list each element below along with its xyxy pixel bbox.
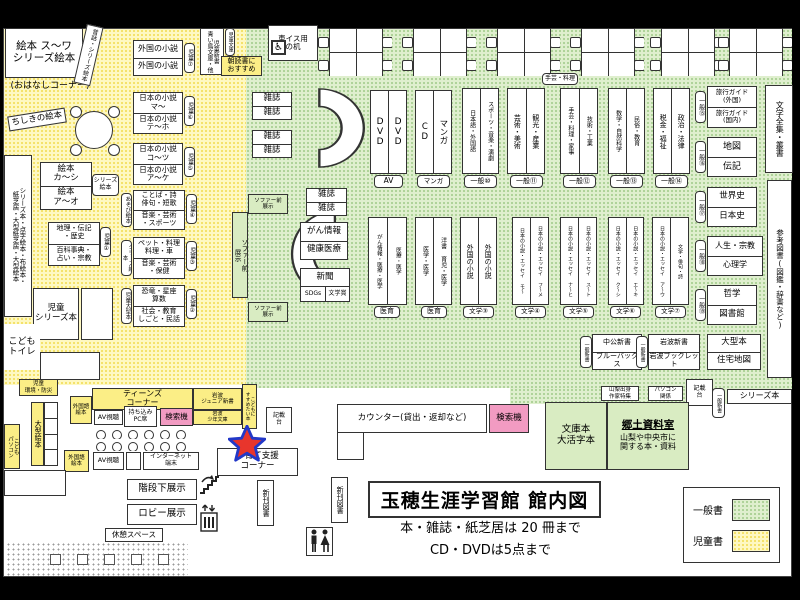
jp-novels-haiku-shelf-col: 日本の小説・エッセイ ア～ウ <box>653 218 670 304</box>
chair-icon <box>650 37 661 48</box>
chair-icon <box>486 37 497 48</box>
chair-icon <box>570 60 581 71</box>
iwanami-shinsho-shelf-row: 岩波ブックレット <box>649 352 699 370</box>
rest-space-label: 休憩スペース <box>105 528 163 542</box>
sdgs-label: SDGs <box>300 286 326 302</box>
foreign-novels-shelf: 外国の小説外国の小説 <box>460 217 497 305</box>
shelf-tag-ippan-14: 一般⑭ <box>655 175 688 188</box>
kotoba-poetry-shelf-row: ことば・詩 俳句・短歌 <box>134 191 184 210</box>
large-picturebook-cells <box>44 402 58 466</box>
library-floor-map: 絵本 ス～ワ シリーズ絵本(おはなしコーナー)昔話・シリーズ絵本ちしきの絵本外国… <box>0 0 800 600</box>
chair-icon <box>382 60 392 71</box>
shelf-tag-iiku: 医育 <box>374 306 400 318</box>
cancer-info-shelf-row: がん情報 <box>301 223 347 241</box>
chuko-shinsho-shelf-row: ブルーバックス <box>593 352 641 370</box>
jp-novels-a-tsu-shelf-row: 日本の小説 ア～ケ <box>134 164 182 185</box>
art-tourism-shelf: 芸術・美術観光・産業 <box>507 88 545 174</box>
series-ehon-tag: シリーズ絵本 <box>121 240 132 276</box>
chair-icon <box>550 37 560 48</box>
math-science-shelf-col: 数学・自然科学 <box>609 89 626 173</box>
life-religion-shelf: 人生・宗教心理学 <box>707 236 763 276</box>
shelf-tag-bungaku-7: 文学⑦ <box>655 306 686 318</box>
medical-yosho-shelf: 医学・医学洋書 育児・医学 <box>415 217 452 305</box>
picturebook-ka-shi-shelf: 絵本 カ～シ絵本 ア～オ <box>40 162 92 210</box>
bench <box>4 470 66 496</box>
counter-leg <box>337 432 364 460</box>
internet-terminal: インターネット 端末 <box>143 452 199 470</box>
chair-icon <box>486 60 497 71</box>
medical-yosho-shelf-col: 洋書 育児・医学 <box>433 218 451 304</box>
world-history-shelf-row: 日本史 <box>708 207 756 227</box>
tax-politics-shelf-col: 税金・福祉 <box>654 89 671 173</box>
shelf-tag-bungaku-3: 文学③ <box>463 306 494 318</box>
chair-icon <box>112 442 122 451</box>
byod-pc-seat: 持ち込み PC席 <box>124 406 157 427</box>
language-sports-shelf: 日本語・外国語スポーツ・音楽・演劇 <box>462 88 499 174</box>
chair-icon <box>112 430 122 439</box>
sofa-crescent <box>313 87 367 169</box>
cd-manga-shelf-col: マンガ <box>433 91 451 173</box>
iwanami-shinsho-shelf: 岩波新書岩波ブックレット <box>648 334 700 370</box>
large-books-shelf: 大型本住宅地図 <box>707 334 761 370</box>
chair-icon <box>634 60 644 71</box>
dvd-shelf: DVDDVD <box>370 90 407 174</box>
av-seat: AV視聴 <box>93 452 124 470</box>
chair-icon <box>550 60 560 71</box>
jp-novels-essay-shelf: 日本の小説・エッセイ モ～日本の小説・エッセイ フ～メ <box>512 217 549 305</box>
jp-novels-essay-shelf-col: 日本の小説・エッセイ エ～キ <box>626 218 644 304</box>
shelf-tag-ippan-16: 一般⑯ <box>695 141 706 173</box>
dvd-shelf-col: DVD <box>371 91 388 173</box>
life-religion-shelf-row: 心理学 <box>708 256 762 276</box>
asadoku-osusume-box: 朝読書に おすすめ <box>221 56 262 76</box>
table-icon <box>413 28 467 76</box>
chair-icon <box>96 442 106 451</box>
local-history-room-title: 郷土資料室 <box>622 420 675 432</box>
large-picturebook-label: 大型絵本 <box>31 402 44 466</box>
cd-manga-shelf-col: CD <box>416 91 433 173</box>
counter: カウンター(貸出・返却など) <box>337 404 487 433</box>
chair-icon <box>176 430 186 439</box>
chair-icon <box>634 37 644 48</box>
jp-novels-essay-shelf: 日本の小説・エッセイ ク～シ日本の小説・エッセイ エ～キ <box>608 217 644 305</box>
jp-novels-ma-ho-shelf-row: 日本の小説 テ～ホ <box>134 113 182 134</box>
childcare-support-corner: 子育て支援 コーナー <box>217 448 298 476</box>
chair-icon <box>160 442 170 451</box>
tax-politics-shelf-col: 政治・法律 <box>671 89 689 173</box>
magazine-shelf-row: 雑誌 <box>307 202 346 216</box>
pet-cooking-shelf-row: 音楽・芸術 ・保健 <box>134 258 184 279</box>
magazine-shelf: 雑誌雑誌 <box>252 130 292 158</box>
picturebook-ka-shi-shelf-row: 絵本 カ～シ <box>41 163 91 186</box>
chair-icon <box>318 37 329 48</box>
jp-novels-a-tsu-shelf: 日本の小説 コ～ツ日本の小説 ア～ケ <box>133 143 183 185</box>
chair-icon <box>144 430 154 439</box>
language-sports-shelf-col: 日本語・外国語 <box>463 89 480 173</box>
craft-tech-shelf-col: 手芸・料理・家事 <box>561 89 579 173</box>
shelf-tag-ippan-18: 一般⑱ <box>695 240 706 272</box>
shelf-tag-ippan-11: 一般⑪ <box>510 175 543 188</box>
chair-icon <box>466 37 476 48</box>
life-religion-shelf-row: 人生・宗教 <box>708 237 762 256</box>
shelf-tag-bungaku-6: 文学⑥ <box>610 306 641 318</box>
chair-icon <box>650 60 661 71</box>
kisaidai-desk: 記載 台 <box>266 407 292 433</box>
foreign-novels-children-shelf-row: 外国の小説 <box>134 58 182 76</box>
large-books-shelf-row: 住宅地図 <box>708 352 760 370</box>
shelf-tag-manga: マンガ <box>417 175 450 188</box>
new-books-shelf: 新刊図書 <box>331 477 348 523</box>
chair-icon <box>782 37 792 48</box>
search-terminal: 検索機 <box>489 404 529 433</box>
math-science-shelf: 数学・自然科学民俗・教育 <box>608 88 645 174</box>
cancer-medical-shelf: がん情報・医療・医学医療・医学 <box>368 217 407 305</box>
geography-biography-shelf: 地理・伝記 ・歴史百科事典・ 占い・宗教 <box>48 222 100 266</box>
ippan-shinsho-tag: 一般新書 <box>580 336 592 368</box>
chair-icon <box>782 60 792 71</box>
shelf-tag-jido-2: 児童② <box>186 289 197 319</box>
craft-cooking-label: 手芸・料理 <box>542 73 578 85</box>
iwanami-shonen-bunko: 岩波 少年文庫 <box>193 410 242 425</box>
pc-related-label: パソコン 関係 <box>648 386 683 401</box>
magazine-shelf: 雑誌雑誌 <box>306 188 347 216</box>
chair-icon <box>144 442 154 451</box>
dinosaur-math-shelf: 恐竜・星座 算数社会・教育 しごと・民話 <box>133 285 185 327</box>
travel-guide-shelf-row: 旅行ガイド (国内) <box>708 107 756 128</box>
side-box <box>126 452 141 470</box>
chair-icon <box>128 442 138 451</box>
shelf-tag-jido-3: 児童③ <box>186 241 197 271</box>
seat-row <box>96 430 186 439</box>
geography-biography-shelf-row: 地理・伝記 ・歴史 <box>49 223 99 244</box>
shelf-cell <box>45 403 57 418</box>
shelf-tag-ippan-13: 一般⑬ <box>610 175 643 188</box>
foreign-novels-shelf-col: 外国の小説 <box>478 218 496 304</box>
shelf-tag-jido-4: 児童④ <box>186 194 197 224</box>
map-biography-shelf-row: 伝記 <box>708 157 756 177</box>
jp-novels-essay-shelf-col: 日本の小説・エッセイ フ～メ <box>530 218 548 304</box>
kotoba-poetry-shelf: ことば・詩 俳句・短歌音楽・芸術 ・スポーツ <box>133 190 185 230</box>
jp-novels-haiku-shelf-col: 文学・俳句・詩 <box>670 218 688 304</box>
asobi-ehon-tag: あそび絵本 <box>121 193 132 227</box>
magazine-shelf-row: 雑誌 <box>253 93 291 106</box>
kids-recommended-shelf: こどもに すすめたい本 <box>242 384 257 429</box>
shelf-tag-jido-6: 児童⑥ <box>184 96 195 126</box>
language-sports-shelf-col: スポーツ・音楽・演劇 <box>480 89 498 173</box>
chuko-shinsho-shelf: 中公新書ブルーバックス <box>592 334 642 370</box>
dvd-shelf-col: DVD <box>388 91 406 173</box>
world-history-shelf-row: 世界史 <box>708 188 756 207</box>
shelf-tag-ippan-12: 一般⑫ <box>563 175 596 188</box>
local-history-room: 郷土資料室山梨や中央市に 関する本・資料 <box>607 402 689 470</box>
shelf-tag-ippan-19: 一般⑲ <box>695 289 706 321</box>
table-icon <box>329 28 383 76</box>
chair-icon <box>718 37 729 48</box>
reference-books-shelf: 参考図書(図鑑・辞書など) <box>767 180 792 378</box>
ippan-shinsho-tag: 一般新書 <box>636 336 648 368</box>
shelf-tag-ippan-10: 一般⑩ <box>464 175 497 188</box>
chuko-shinsho-shelf-row: 中公新書 <box>593 335 641 352</box>
kotoba-poetry-shelf-row: 音楽・芸術 ・スポーツ <box>134 210 184 230</box>
chair-icon <box>96 430 106 439</box>
local-history-room-desc: 山梨や中央市に 関する本・資料 <box>620 434 676 452</box>
shelf-tag-jido-5: 児童⑤ <box>184 147 195 177</box>
cd-manga-shelf: CDマンガ <box>415 90 452 174</box>
av-seat: AV視聴 <box>94 410 123 425</box>
shelf-tag-jido-1: 児童① <box>100 227 111 257</box>
map-biography-shelf: 地図伝記 <box>707 137 757 177</box>
wheelchair-desk: 車イス用 の机 <box>268 25 318 61</box>
literature-collection-shelf: 文学全集・叢書 <box>765 85 793 173</box>
cancer-info-shelf-row: 健康医療 <box>301 241 347 260</box>
jp-novels-essay-shelf: 日本の小説・エッセイ ナ～ヒ日本の小説・エッセイ ス～ト <box>560 217 597 305</box>
art-tourism-shelf-col: 観光・産業 <box>526 89 545 173</box>
series-ehon-side-tag: シリーズ 絵本 <box>92 174 119 196</box>
philosophy-library-shelf-row: 図書館 <box>708 305 756 325</box>
reading-table <box>318 28 392 76</box>
philosophy-library-shelf: 哲学図書館 <box>707 285 757 325</box>
table-icon <box>581 28 635 76</box>
magazine-shelf-row: 雑誌 <box>253 131 291 144</box>
magazine-shelf-row: 雑誌 <box>253 144 291 158</box>
shelf-tag-ippan-17: 一般⑰ <box>695 191 706 223</box>
reading-table <box>402 28 476 76</box>
yamanashi-authors-label: 山梨出身 作家特集 <box>601 386 639 401</box>
pet-cooking-shelf: ペット・料理 料理・車音楽・芸術 ・保健 <box>133 237 185 279</box>
travel-guide-shelf: 旅行ガイド (外国)旅行ガイド (国内) <box>707 86 757 128</box>
map-biography-shelf-row: 地図 <box>708 138 756 157</box>
tax-politics-shelf: 税金・福祉政治・法律 <box>653 88 690 174</box>
kids-pc: こども パソコン <box>4 424 20 469</box>
new-books-shelf: 新刊図書 <box>257 480 274 526</box>
art-tourism-shelf-col: 芸術・美術 <box>508 89 526 173</box>
foreign-novels-shelf-col: 外国の小説 <box>461 218 478 304</box>
lobby-display: ロビー展示 <box>127 504 197 525</box>
table-icon <box>661 28 715 76</box>
medical-yosho-shelf-col: 医学・医学 <box>416 218 433 304</box>
seat-row <box>96 442 186 451</box>
geography-biography-shelf-row: 百科事典・ 占い・宗教 <box>49 244 99 266</box>
chair-icon <box>570 37 581 48</box>
shelf-cell <box>45 434 57 450</box>
toilet-stalls <box>40 352 100 380</box>
shelf-strips <box>81 288 113 340</box>
magazine-shelf: 雑誌雑誌 <box>252 92 292 120</box>
chair-icon <box>382 37 392 48</box>
world-history-shelf: 世界史日本史 <box>707 187 757 227</box>
shelf-cell <box>45 418 57 434</box>
large-books-shelf-row: 大型本 <box>708 335 760 352</box>
jp-novels-ma-ho-shelf-row: 日本の小説 マ～ <box>134 93 182 113</box>
chair-icon <box>160 430 170 439</box>
shelf-tag-bungaku-5: 文学⑤ <box>563 306 594 318</box>
sofa-front-display: ソファー前 展示 <box>248 302 288 322</box>
pet-cooking-shelf-row: ペット・料理 料理・車 <box>134 238 184 258</box>
under-stairs-display: 階段下展示 <box>127 479 197 500</box>
magazine-shelf-row: 雑誌 <box>253 106 291 120</box>
reading-table <box>718 28 792 76</box>
jido-bunko-tag: 児童文庫 <box>225 28 235 56</box>
chair-icon <box>402 37 413 48</box>
chair-icon <box>318 60 329 71</box>
shelf-tag-bungaku-4: 文学④ <box>515 306 546 318</box>
shelf-tag-av: AV <box>374 175 403 188</box>
children-env-disaster: 児童 環境・防災 <box>19 379 58 396</box>
foreign-picturebooks: 外国語 絵本 <box>64 450 89 472</box>
kamishibai-series-shelf: シリーズ本・点字絵本・布絵本・ 紙芝居・大型紙芝居・大型絵本 <box>4 155 32 317</box>
search-terminal: 検索機 <box>160 408 193 426</box>
jp-novels-essay-shelf-col: 日本の小説・エッセイ ク～シ <box>609 218 626 304</box>
cancer-medical-shelf-col: がん情報・医療・医学 <box>369 218 387 304</box>
jp-novels-ma-ho-shelf: 日本の小説 マ～日本の小説 テ～ホ <box>133 92 183 134</box>
cancer-info-shelf: がん情報健康医療 <box>300 222 348 260</box>
reading-table <box>570 28 644 76</box>
foreign-picturebooks: 外国語 絵本 <box>70 396 92 424</box>
jp-novels-essay-shelf-col: 日本の小説・エッセイ ナ～ヒ <box>561 218 578 304</box>
dinosaur-math-shelf-row: 社会・教育 しごと・民話 <box>134 306 184 327</box>
chair-icon <box>128 430 138 439</box>
chair-icon <box>466 60 476 71</box>
sofa-front-display: ソファー前 展示 <box>248 194 288 214</box>
dinosaur-math-shelf-row: 恐竜・星座 算数 <box>134 286 184 306</box>
travel-guide-shelf-row: 旅行ガイド (外国) <box>708 87 756 107</box>
jp-novels-essay-shelf-col: 日本の小説・エッセイ ス～ト <box>578 218 596 304</box>
jido-ogata-tag: 児童大型本 <box>121 288 132 324</box>
foreign-novels-children-shelf-row: 外国の小説 <box>134 41 182 58</box>
series-books-shelf: シリーズ本 <box>727 389 792 404</box>
iwanami-junior-shinsho: 岩波 ジュニア新書 <box>193 388 242 410</box>
sofa-icon <box>313 87 367 169</box>
shelf-tag-jido-7: 児童⑦ <box>184 43 195 73</box>
foreign-novels-children-shelf: 外国の小説外国の小説 <box>133 40 183 76</box>
reading-table <box>650 28 724 76</box>
philosophy-library-shelf-row: 哲学 <box>708 286 756 305</box>
table-icon <box>729 28 783 76</box>
cancer-medical-shelf-col: 医療・医学 <box>387 218 406 304</box>
magazine-shelf-row: 雑誌 <box>307 189 346 202</box>
craft-tech-shelf: 手芸・料理・家事技術・工業 <box>560 88 598 174</box>
craft-tech-shelf-col: 技術・工業 <box>579 89 598 173</box>
math-science-shelf-col: 民俗・教育 <box>626 89 644 173</box>
literature-award-label: 文学賞 <box>325 286 350 302</box>
shelf-cell <box>45 449 57 465</box>
jp-novels-haiku-shelf: 日本の小説・エッセイ ア～ウ文学・俳句・詩 <box>652 217 689 305</box>
kids-toilet-label: こども トイレ <box>4 324 40 370</box>
shelf-tag-ippan-15: 一般⑮ <box>695 91 706 123</box>
reading-table <box>486 28 560 76</box>
bunko-large-print-shelf: 文庫本 大活字本 <box>545 402 607 470</box>
shelf-tag-iiku: 医育 <box>421 306 447 318</box>
ippan-shinsho-tag: 一般新書 <box>712 388 725 418</box>
sofa-front-display: ソファー前 展示 <box>232 212 248 298</box>
table-icon <box>497 28 551 76</box>
kisaidai-desk: 記載 台 <box>686 379 713 406</box>
iwanami-shinsho-shelf-row: 岩波新書 <box>649 335 699 352</box>
chair-icon <box>402 60 413 71</box>
jp-novels-essay-shelf-col: 日本の小説・エッセイ モ～ <box>513 218 530 304</box>
newspaper-shelf: 新聞 <box>300 268 350 287</box>
picturebook-su-wa-shelf: 絵本 ス～ワ シリーズ絵本 <box>5 28 83 78</box>
chair-icon <box>718 60 729 71</box>
picturebook-ka-shi-shelf-row: 絵本 ア～オ <box>41 186 91 210</box>
chair-icon <box>176 442 186 451</box>
jp-novels-a-tsu-shelf-row: 日本の小説 コ～ツ <box>134 144 182 164</box>
